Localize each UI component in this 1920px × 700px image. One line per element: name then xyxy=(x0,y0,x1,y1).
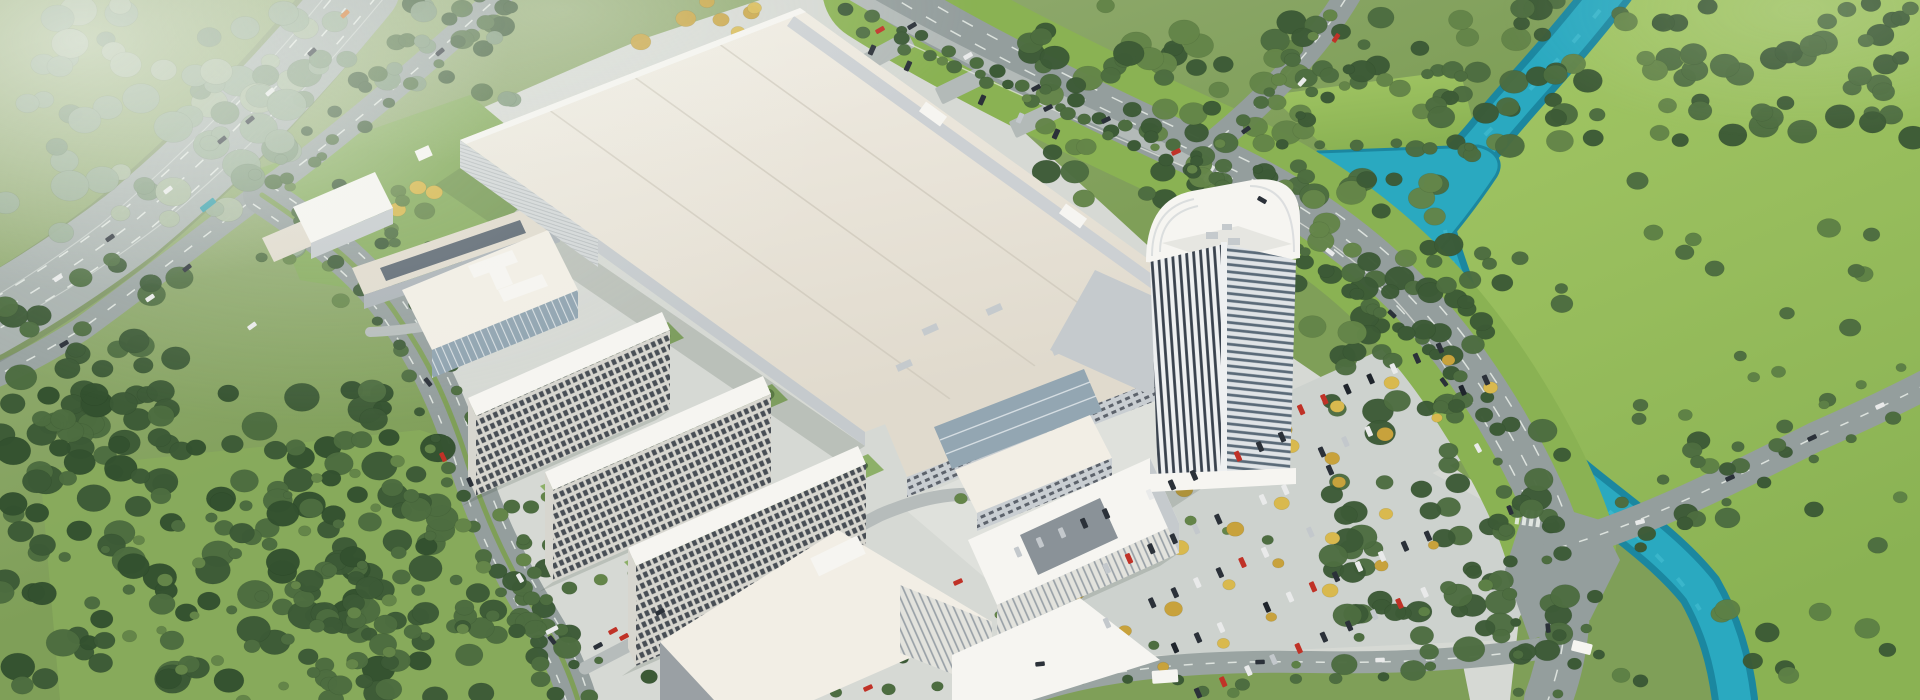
tower-corner-pilaster xyxy=(1221,242,1227,476)
tower-southwest-face xyxy=(1150,244,1224,484)
gatehouse-south xyxy=(1152,669,1179,684)
office-tower xyxy=(1146,179,1300,492)
campus-aerial-rendering xyxy=(0,0,1920,700)
rendering-canvas xyxy=(0,0,1920,700)
